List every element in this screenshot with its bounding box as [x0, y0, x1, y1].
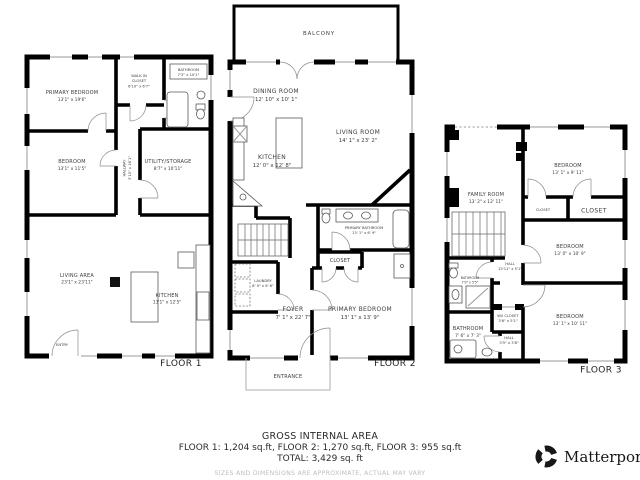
toilet	[322, 213, 330, 223]
room-dims-primary-bedroom-f1: 13'1" x 19'6"	[58, 97, 87, 103]
floor3-plan: FAMILY ROOM 13' 2" x 12' 11" BEDROOM 13'…	[444, 124, 628, 376]
room-label-bathroom-upper: BATHROOM	[461, 276, 480, 280]
sink	[197, 91, 205, 99]
room-dims-living-room: 14' 1" x 23' 2"	[339, 138, 378, 144]
floorplan-page: PRIMARY BEDROOM 13'1" x 19'6" WALK IN CL…	[0, 0, 640, 480]
room-dims-utility-storage: 8'7" x 10'11"	[154, 166, 183, 172]
room-dims-laundry: 6' 0" x 6' 6"	[252, 284, 274, 288]
room-dims-bedroom-bottom: 13' 1" x 10' 11"	[553, 321, 587, 327]
room-label-living-room: LIVING ROOM	[336, 129, 380, 136]
floor1-label: FLOOR 1	[160, 359, 202, 369]
room-label-bedroom-mid: BEDROOM	[556, 244, 584, 250]
room-dims-foyer: 7' 1" x 22' 7"	[275, 315, 310, 321]
room-label-hall-lower: HALL	[504, 336, 514, 340]
room-dims-kitchen-f1: 13'1" x 12'5"	[153, 300, 182, 306]
vanity	[336, 209, 378, 222]
room-label-kitchen-f1: KITCHEN	[155, 293, 178, 299]
room-label-family-room: FAMILY ROOM	[468, 192, 504, 198]
room-label-entry: ENTRY	[56, 343, 69, 347]
room-dims-walk-in-closet: 6'10" x 6'7"	[128, 85, 150, 89]
room-dims-hall-lower: 3'5" x 3'8"	[499, 341, 519, 345]
room-label-foyer: FOYER	[283, 306, 304, 313]
closet-doorpost	[493, 304, 502, 310]
matterport-wordmark: Matterport	[564, 448, 640, 466]
kitchen-island	[131, 272, 158, 322]
room-dims-bathroom-f1: 7'3" x 10'1"	[178, 73, 200, 77]
room-dims-kitchen-f2: 12' 0" x 12' 8"	[253, 163, 292, 169]
room-dims-family-room: 13' 2" x 12' 11"	[469, 199, 503, 205]
floor3-label: FLOOR 3	[580, 366, 622, 376]
appliance	[197, 292, 209, 320]
toilet	[197, 109, 205, 119]
room-label-dining-room: DINING ROOM	[253, 88, 299, 95]
bathtub	[167, 92, 188, 127]
floor3-stairs	[452, 212, 505, 256]
room-dims-dining-room: 12' 10" x 10' 1"	[255, 97, 297, 103]
room-dims-wi-closet: 3'6" x 5'1"	[498, 319, 518, 323]
room-label-utility-storage: UTILITY/STORAGE	[144, 159, 191, 165]
svg-text:HALLWAY: HALLWAY	[123, 159, 127, 177]
room-dims-bedroom-f1: 13'1" x 11'5"	[58, 166, 87, 172]
floorplan-drawing: PRIMARY BEDROOM 13'1" x 19'6" WALK IN CL…	[0, 0, 640, 480]
bathtub	[393, 210, 409, 248]
room-label-kitchen-f2: KITCHEN	[258, 154, 286, 161]
room-dims-bathroom-lower: 7' 6" x 7' 3"	[455, 333, 481, 339]
room-label-bathroom-f1: BATHROOM	[178, 68, 199, 72]
closet-doorpost	[515, 304, 524, 310]
floor2-plan: BALCONY DINING ROOM 12' 10" x 10' 1" LIV…	[227, 6, 416, 390]
svg-text:3'10" x 16'1": 3'10" x 16'1"	[128, 156, 132, 180]
toilet	[450, 268, 458, 278]
sink	[240, 194, 246, 200]
room-label-bedroom-top: BEDROOM	[554, 163, 582, 169]
room-label-primary-bathroom: PRIMARY BATHROOM	[345, 226, 384, 230]
floor1-plan: PRIMARY BEDROOM 13'1" x 19'6" WALK IN CL…	[24, 54, 214, 369]
room-label-closet-large: CLOSET	[581, 208, 607, 215]
room-label-bedroom-bottom: BEDROOM	[556, 314, 584, 320]
room-label-entrance: ENTRANCE	[274, 374, 303, 380]
toilet-tank	[449, 263, 458, 268]
room-dims-bedroom-top: 13' 1" x 9' 11"	[552, 170, 583, 176]
room-label-primary-bedroom-f2: PRIMARY BEDROOM	[328, 306, 392, 313]
room-label-closet-f2: CLOSET	[330, 258, 351, 264]
room-label-primary-bedroom-f1: PRIMARY BEDROOM	[46, 90, 99, 96]
floor2-stairs	[238, 224, 288, 256]
room-label-bathroom-lower: BATHROOM	[453, 326, 484, 332]
room-label-wi-closet: W/I CLOSET	[497, 314, 519, 318]
room-label-laundry: LAUNDRY	[254, 279, 272, 283]
room-label-balcony: BALCONY	[303, 31, 335, 37]
floor2-label: FLOOR 2	[374, 359, 416, 369]
room-dims-primary-bedroom-f2: 13' 1" x 13' 9"	[341, 315, 380, 321]
matterport-logo: Matterport	[534, 444, 640, 469]
sink	[344, 212, 353, 219]
disclaimer: SIZES AND DIMENSIONS ARE APPROXIMATE, AC…	[0, 470, 640, 477]
room-label-bedroom-f1: BEDROOM	[58, 159, 86, 165]
room-dims-bedroom-mid: 13' 0" x 10' 9"	[554, 251, 585, 257]
room-dims-hall-upper: 15'11" x 5'1"	[498, 267, 522, 271]
room-dims-living-area: 23'1" x 23'11"	[61, 280, 92, 286]
matterport-icon	[534, 444, 559, 469]
room-label-walk-in-closet-2: CLOSET	[132, 79, 147, 83]
room-dims-bathroom-upper: 7'9" x 5'5"	[462, 281, 479, 285]
room-label-closet-small: CLOSET	[536, 208, 551, 212]
room-label-hall-upper: HALL	[505, 262, 515, 266]
sink	[482, 348, 492, 356]
room-label-living-area: LIVING AREA	[60, 273, 94, 279]
cabinet	[178, 252, 194, 268]
sink	[452, 290, 459, 300]
sink	[362, 212, 371, 219]
room-dims-primary-bathroom: 13' 1" x 6' 9"	[352, 231, 376, 235]
room-label-walk-in-closet-1: WALK IN	[131, 74, 147, 78]
gross-area-title: GROSS INTERNAL AREA	[0, 431, 640, 442]
fireplace	[110, 277, 120, 287]
